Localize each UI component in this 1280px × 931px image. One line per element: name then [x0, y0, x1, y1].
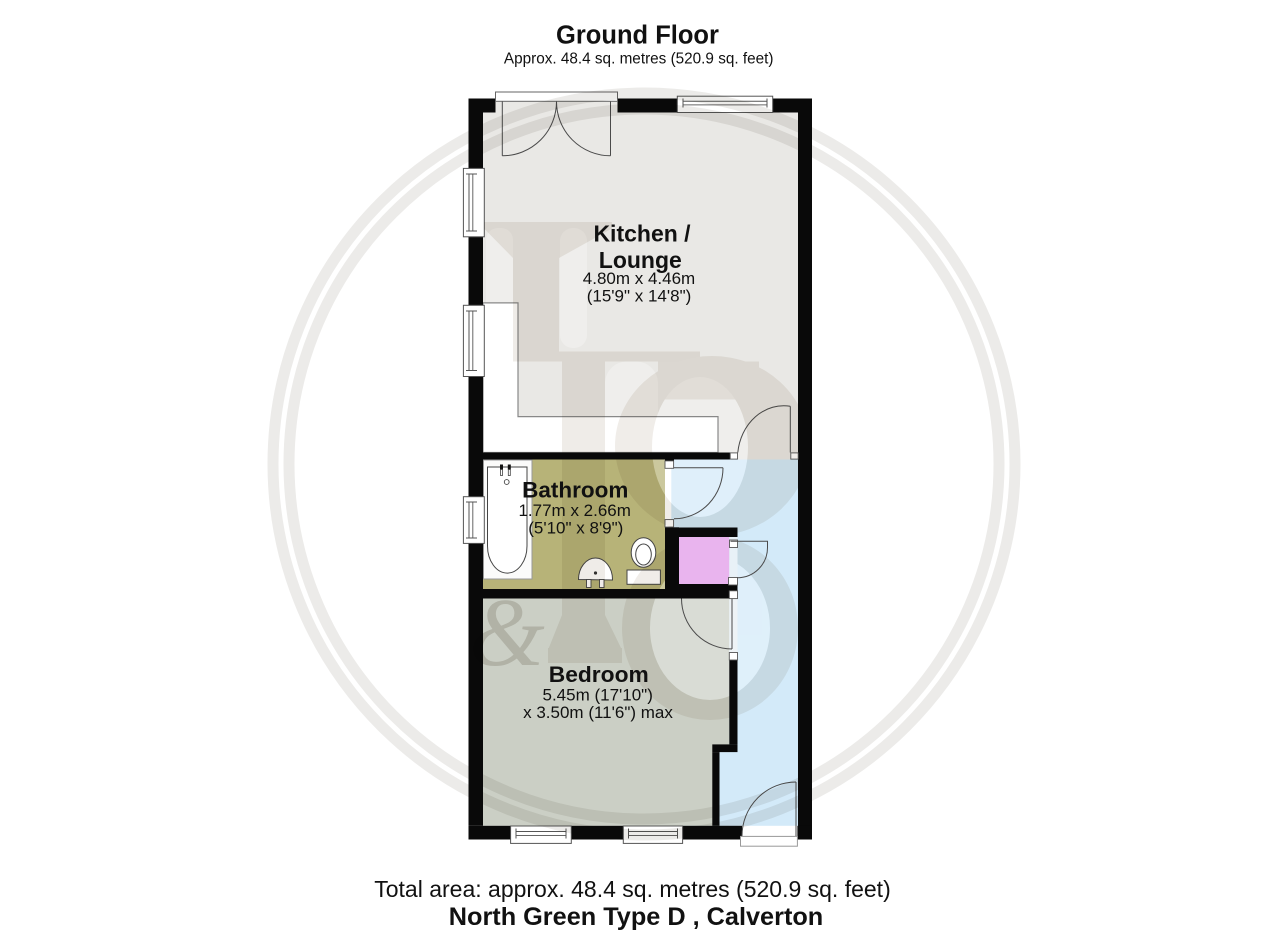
svg-text:Bedroom: Bedroom	[549, 662, 649, 687]
svg-text:4.80m x 4.46m: 4.80m x 4.46m	[583, 269, 695, 288]
svg-text:5.45m (17'10"): 5.45m (17'10")	[542, 686, 652, 705]
svg-text:North Green Type D , Calverton: North Green Type D , Calverton	[449, 903, 824, 931]
svg-text:1.77m x 2.66m: 1.77m x 2.66m	[518, 501, 630, 520]
svg-text:Total area: approx. 48.4 sq. m: Total area: approx. 48.4 sq. metres (520…	[374, 876, 891, 902]
svg-text:Ground Floor: Ground Floor	[556, 22, 719, 50]
svg-text:&: &	[469, 579, 545, 686]
svg-text:x 3.50m (11'6") max: x 3.50m (11'6") max	[523, 703, 673, 722]
svg-text:Kitchen /: Kitchen /	[593, 221, 691, 247]
svg-text:Bathroom: Bathroom	[522, 478, 628, 503]
svg-text:(5'10" x 8'9"): (5'10" x 8'9")	[528, 518, 623, 537]
svg-text:Approx. 48.4 sq. metres (520.9: Approx. 48.4 sq. metres (520.9 sq. feet)	[504, 51, 774, 68]
svg-text:(15'9" x 14'8"): (15'9" x 14'8")	[587, 287, 692, 306]
